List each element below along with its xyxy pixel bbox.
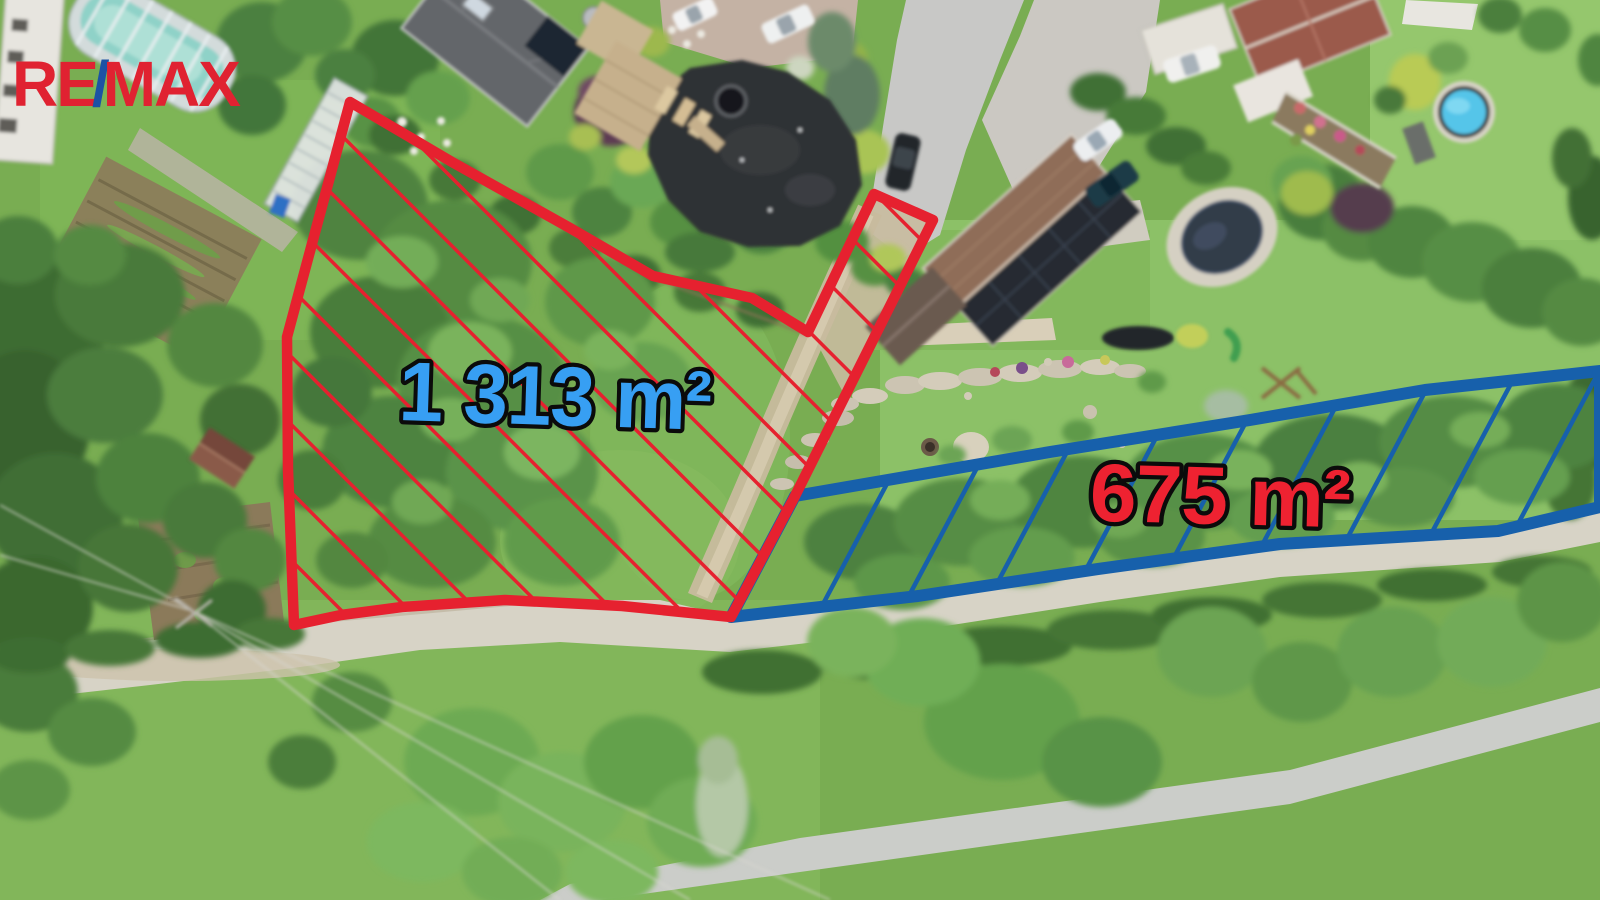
round-pool xyxy=(1433,81,1495,143)
aerial-scene: 1 313 m² 675 m² xyxy=(0,0,1600,900)
plot-blue-area-label: 675 m² xyxy=(1089,448,1351,546)
remax-logo-max: MAX xyxy=(103,48,239,120)
remax-logo: RE/MAX xyxy=(12,52,239,116)
remax-logo-re: RE xyxy=(12,48,97,120)
plot-red-area-label: 1 313 m² xyxy=(398,344,713,448)
aerial-listing-photo: 1 313 m² 675 m² RE/MAX xyxy=(0,0,1600,900)
